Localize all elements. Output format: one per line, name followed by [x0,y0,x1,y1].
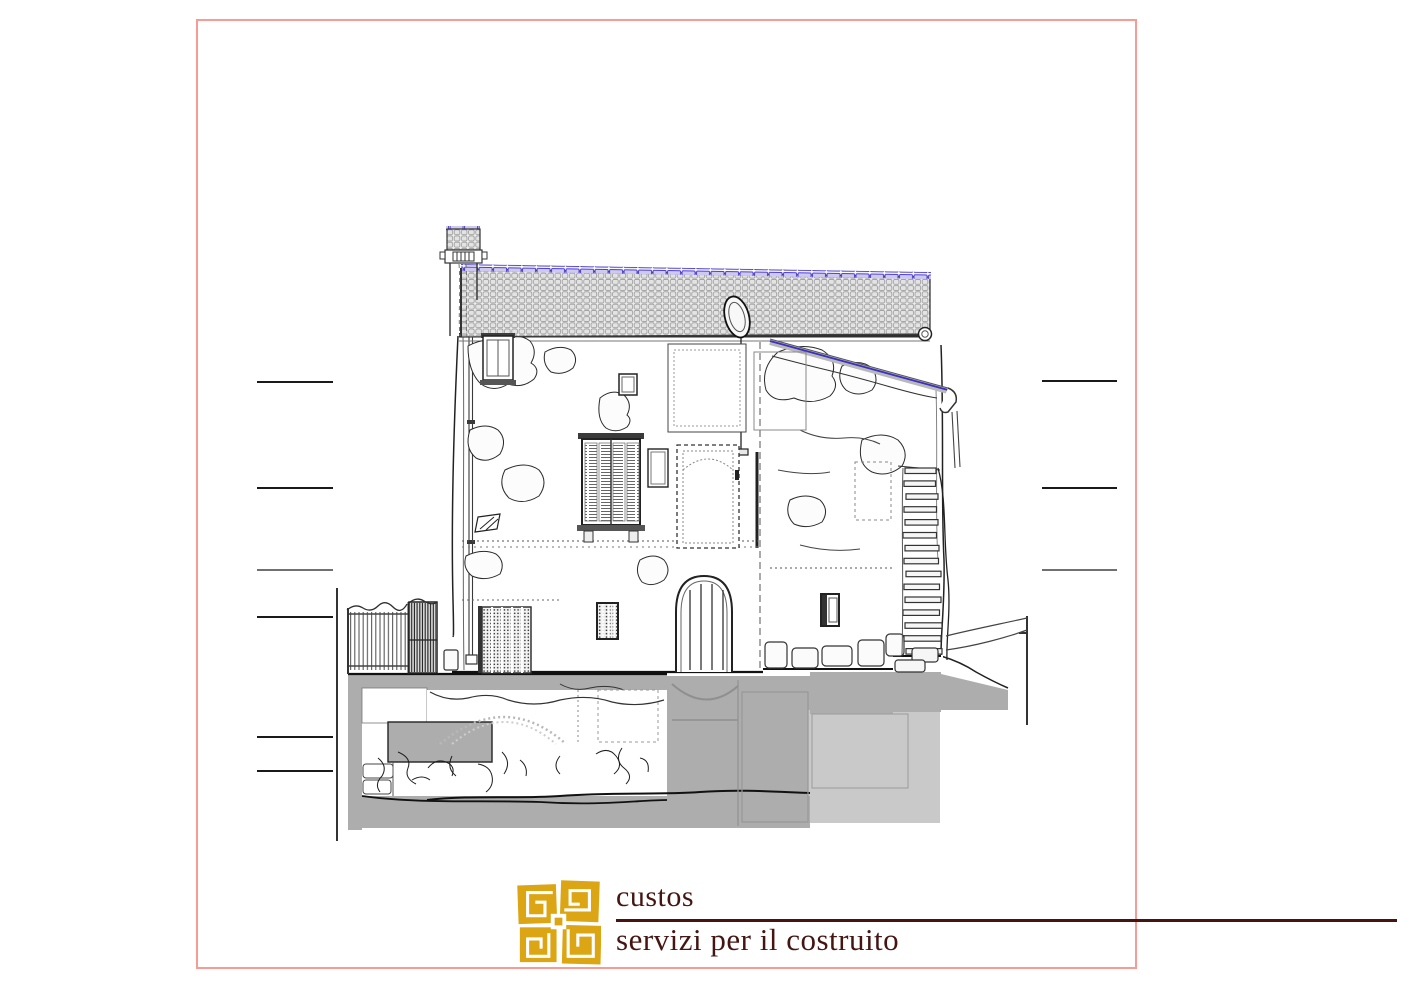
ground-section-fill [348,652,1008,830]
logo-subtitle: servizi per il costruito [616,923,899,957]
custos-logo-icon [516,879,601,966]
window-top-left [480,333,516,385]
door-arched [676,576,732,672]
window-small-square [619,374,637,395]
custos-logo: custos servizi per il costruito [516,879,1401,974]
door-cellar-lattice [478,606,531,673]
logo-title: custos [616,880,694,913]
roof [461,264,932,340]
door-upper-dashed [677,445,739,548]
elevation-drawing [0,0,1401,990]
window-narrow [648,449,668,487]
solar-panel-icon [475,514,500,532]
window-barred [597,603,618,639]
window-shuttered [577,433,645,542]
window-right-wing [821,594,839,626]
garden-fence [347,599,437,674]
upper-panel [668,344,746,432]
gutter-end [919,328,932,341]
